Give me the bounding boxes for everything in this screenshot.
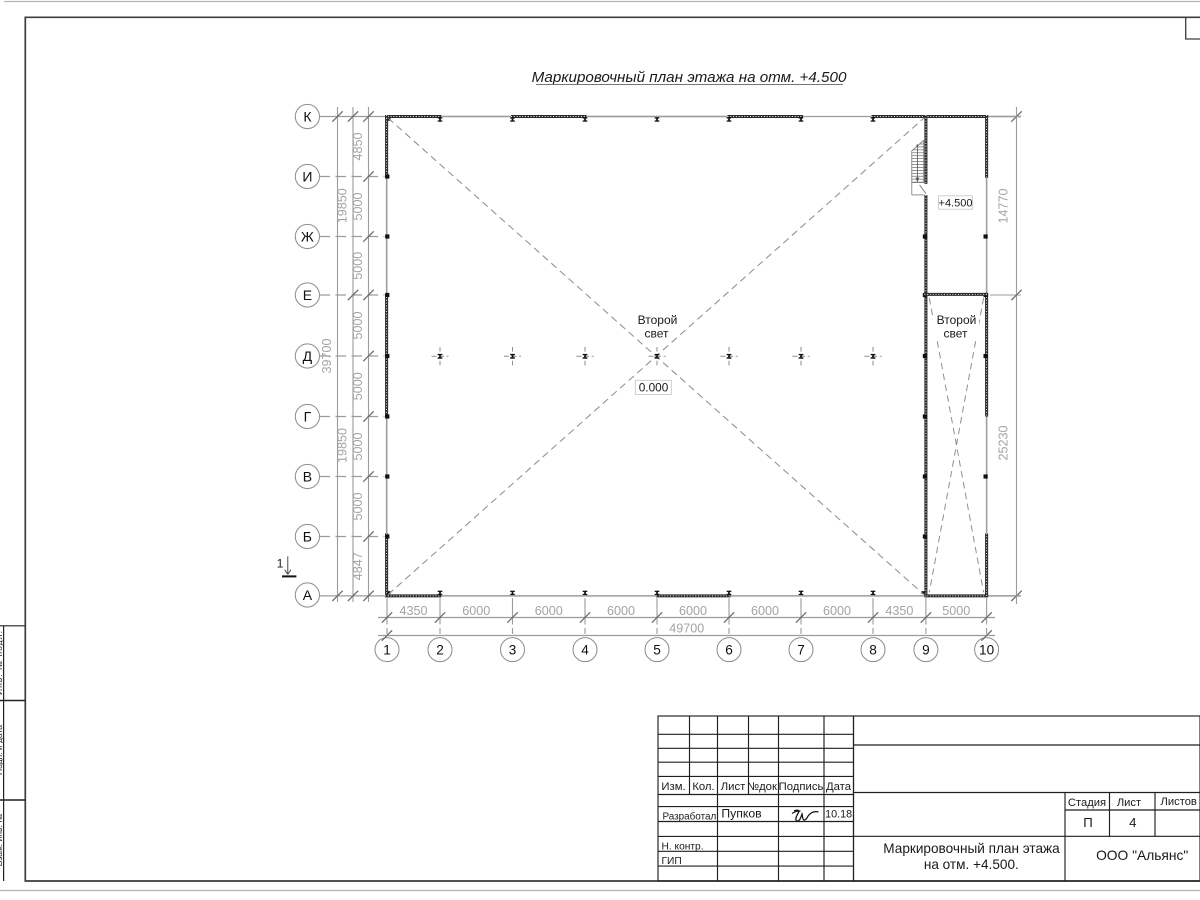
svg-text:5000: 5000 — [351, 432, 365, 460]
svg-text:25230: 25230 — [997, 425, 1011, 460]
svg-text:6000: 6000 — [607, 604, 635, 618]
svg-text:5000: 5000 — [351, 492, 365, 520]
svg-text:Лист: Лист — [721, 781, 746, 793]
svg-text:5: 5 — [653, 643, 661, 658]
svg-text:Е: Е — [303, 287, 312, 303]
svg-text:Кол.: Кол. — [692, 781, 714, 793]
svg-text:6: 6 — [725, 643, 733, 658]
svg-text:ООО "Альянс": ООО "Альянс" — [1096, 848, 1188, 863]
svg-text:6000: 6000 — [535, 604, 563, 618]
svg-text:А: А — [303, 587, 313, 603]
svg-text:4350: 4350 — [399, 604, 427, 618]
svg-text:свет: свет — [644, 326, 669, 340]
svg-text:Подпись: Подпись — [779, 781, 824, 793]
svg-text:Пупков: Пупков — [721, 807, 761, 821]
svg-text:6000: 6000 — [751, 604, 779, 618]
svg-text:19850: 19850 — [335, 428, 349, 463]
svg-text:Н. контр.: Н. контр. — [662, 841, 704, 852]
svg-text:6000: 6000 — [462, 604, 490, 618]
svg-text:Подп. и дата: Подп. и дата — [0, 725, 4, 775]
svg-text:5000: 5000 — [351, 372, 365, 400]
svg-text:4350: 4350 — [885, 604, 913, 618]
svg-text:П: П — [1083, 815, 1092, 830]
svg-text:Ж: Ж — [301, 229, 314, 245]
svg-text:3: 3 — [509, 643, 517, 658]
svg-text:В: В — [303, 469, 312, 485]
svg-text:свет: свет — [943, 326, 968, 340]
svg-text:5000: 5000 — [351, 311, 365, 339]
svg-text:10.18: 10.18 — [825, 809, 852, 821]
svg-text:1: 1 — [277, 557, 284, 571]
svg-text:14770: 14770 — [997, 188, 1011, 223]
svg-text:на отм. +4.500.: на отм. +4.500. — [924, 857, 1019, 872]
svg-text:К: К — [303, 109, 312, 125]
svg-text:Дата: Дата — [826, 781, 852, 793]
svg-text:8: 8 — [869, 643, 877, 658]
svg-text:Маркировочный план этажа на от: Маркировочный план этажа на отм. +4.500 — [532, 69, 847, 86]
svg-text:5000: 5000 — [351, 252, 365, 280]
svg-text:10: 10 — [979, 643, 995, 658]
svg-text:Б: Б — [303, 529, 312, 545]
svg-text:+4.500: +4.500 — [939, 197, 973, 209]
svg-text:Взам. инв. №: Взам. инв. № — [0, 814, 4, 867]
svg-text:Листов: Листов — [1161, 796, 1197, 808]
svg-text:Инв. № подл.: Инв. № подл. — [0, 631, 4, 695]
svg-text:0.000: 0.000 — [639, 381, 669, 395]
svg-text:5000: 5000 — [351, 192, 365, 220]
svg-text:4: 4 — [581, 643, 589, 658]
svg-text:6000: 6000 — [823, 604, 851, 618]
svg-text:1: 1 — [383, 643, 391, 658]
svg-text:Изм.: Изм. — [661, 781, 685, 793]
svg-text:ГИП: ГИП — [662, 856, 682, 867]
svg-text:Второй: Второй — [937, 313, 977, 327]
svg-text:Лист: Лист — [1117, 797, 1141, 809]
svg-text:Маркировочный план этажа: Маркировочный план этажа — [883, 841, 1060, 856]
svg-text:Разработал: Разработал — [663, 812, 717, 823]
svg-text:Стадия: Стадия — [1068, 797, 1106, 809]
svg-text:4: 4 — [1129, 815, 1136, 830]
svg-text:39700: 39700 — [320, 338, 334, 373]
svg-text:4850: 4850 — [351, 132, 365, 160]
svg-text:Г: Г — [304, 409, 312, 425]
svg-text:19850: 19850 — [335, 188, 349, 223]
svg-text:7: 7 — [797, 643, 805, 658]
svg-text:2: 2 — [436, 643, 444, 658]
svg-text:4847: 4847 — [351, 552, 365, 580]
svg-text:5000: 5000 — [942, 604, 970, 618]
svg-text:6000: 6000 — [679, 604, 707, 618]
svg-text:Второй: Второй — [638, 313, 678, 327]
svg-text:Д: Д — [303, 348, 313, 364]
svg-text:№док.: №док. — [747, 781, 780, 793]
svg-text:И: И — [302, 169, 312, 185]
svg-text:9: 9 — [922, 643, 930, 658]
svg-text:49700: 49700 — [669, 621, 704, 635]
